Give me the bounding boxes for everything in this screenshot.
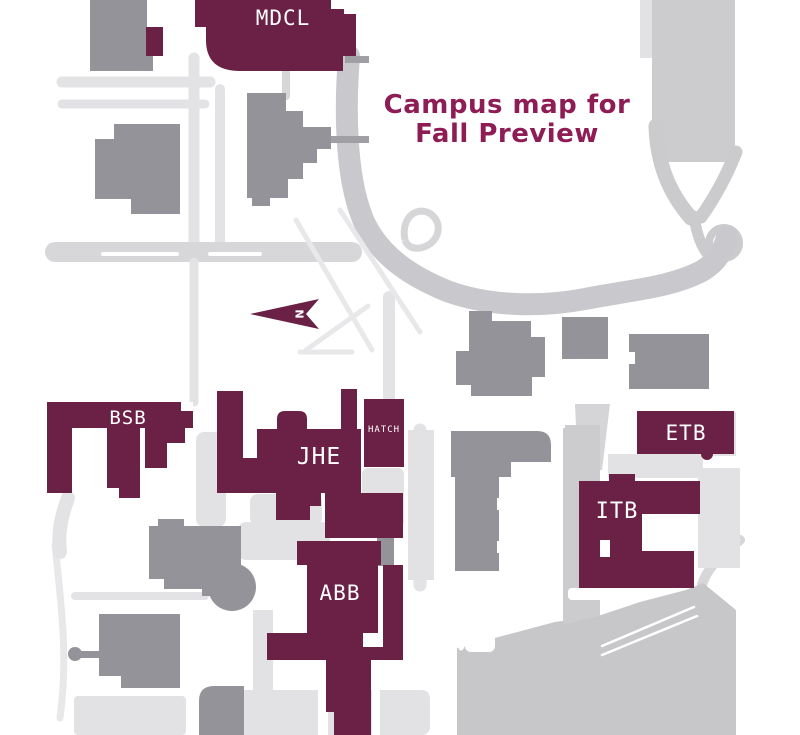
label-etb: ETB bbox=[666, 421, 707, 445]
label-itb: ITB bbox=[596, 499, 639, 524]
page-title: Campus map for Fall Preview bbox=[384, 90, 631, 149]
campus-map: MDCL BSB JHE HATCH ETB ITB ABB N Campus … bbox=[0, 0, 800, 735]
label-mdcl: MDCL bbox=[256, 6, 311, 30]
title-line-1: Campus map for bbox=[384, 90, 631, 120]
gray-building bbox=[80, 651, 100, 658]
gray-building bbox=[90, 0, 153, 71]
gray-building bbox=[202, 576, 226, 596]
mdcl-annex-shape bbox=[146, 27, 163, 56]
label-hatch: HATCH bbox=[368, 425, 400, 435]
gray-building bbox=[252, 198, 270, 206]
gray-building bbox=[562, 317, 608, 359]
label-abb: ABB bbox=[320, 581, 361, 605]
gray-building bbox=[158, 519, 184, 527]
label-jhe: JHE bbox=[297, 444, 342, 470]
gray-building bbox=[629, 334, 709, 389]
label-bsb: BSB bbox=[109, 407, 146, 429]
gray-building bbox=[68, 647, 82, 661]
title-line-2: Fall Preview bbox=[415, 119, 599, 149]
north-arrow-label: N bbox=[293, 309, 306, 318]
gray-building bbox=[199, 686, 244, 735]
campus-map-page: MDCL BSB JHE HATCH ETB ITB ABB N Campus … bbox=[0, 0, 800, 735]
